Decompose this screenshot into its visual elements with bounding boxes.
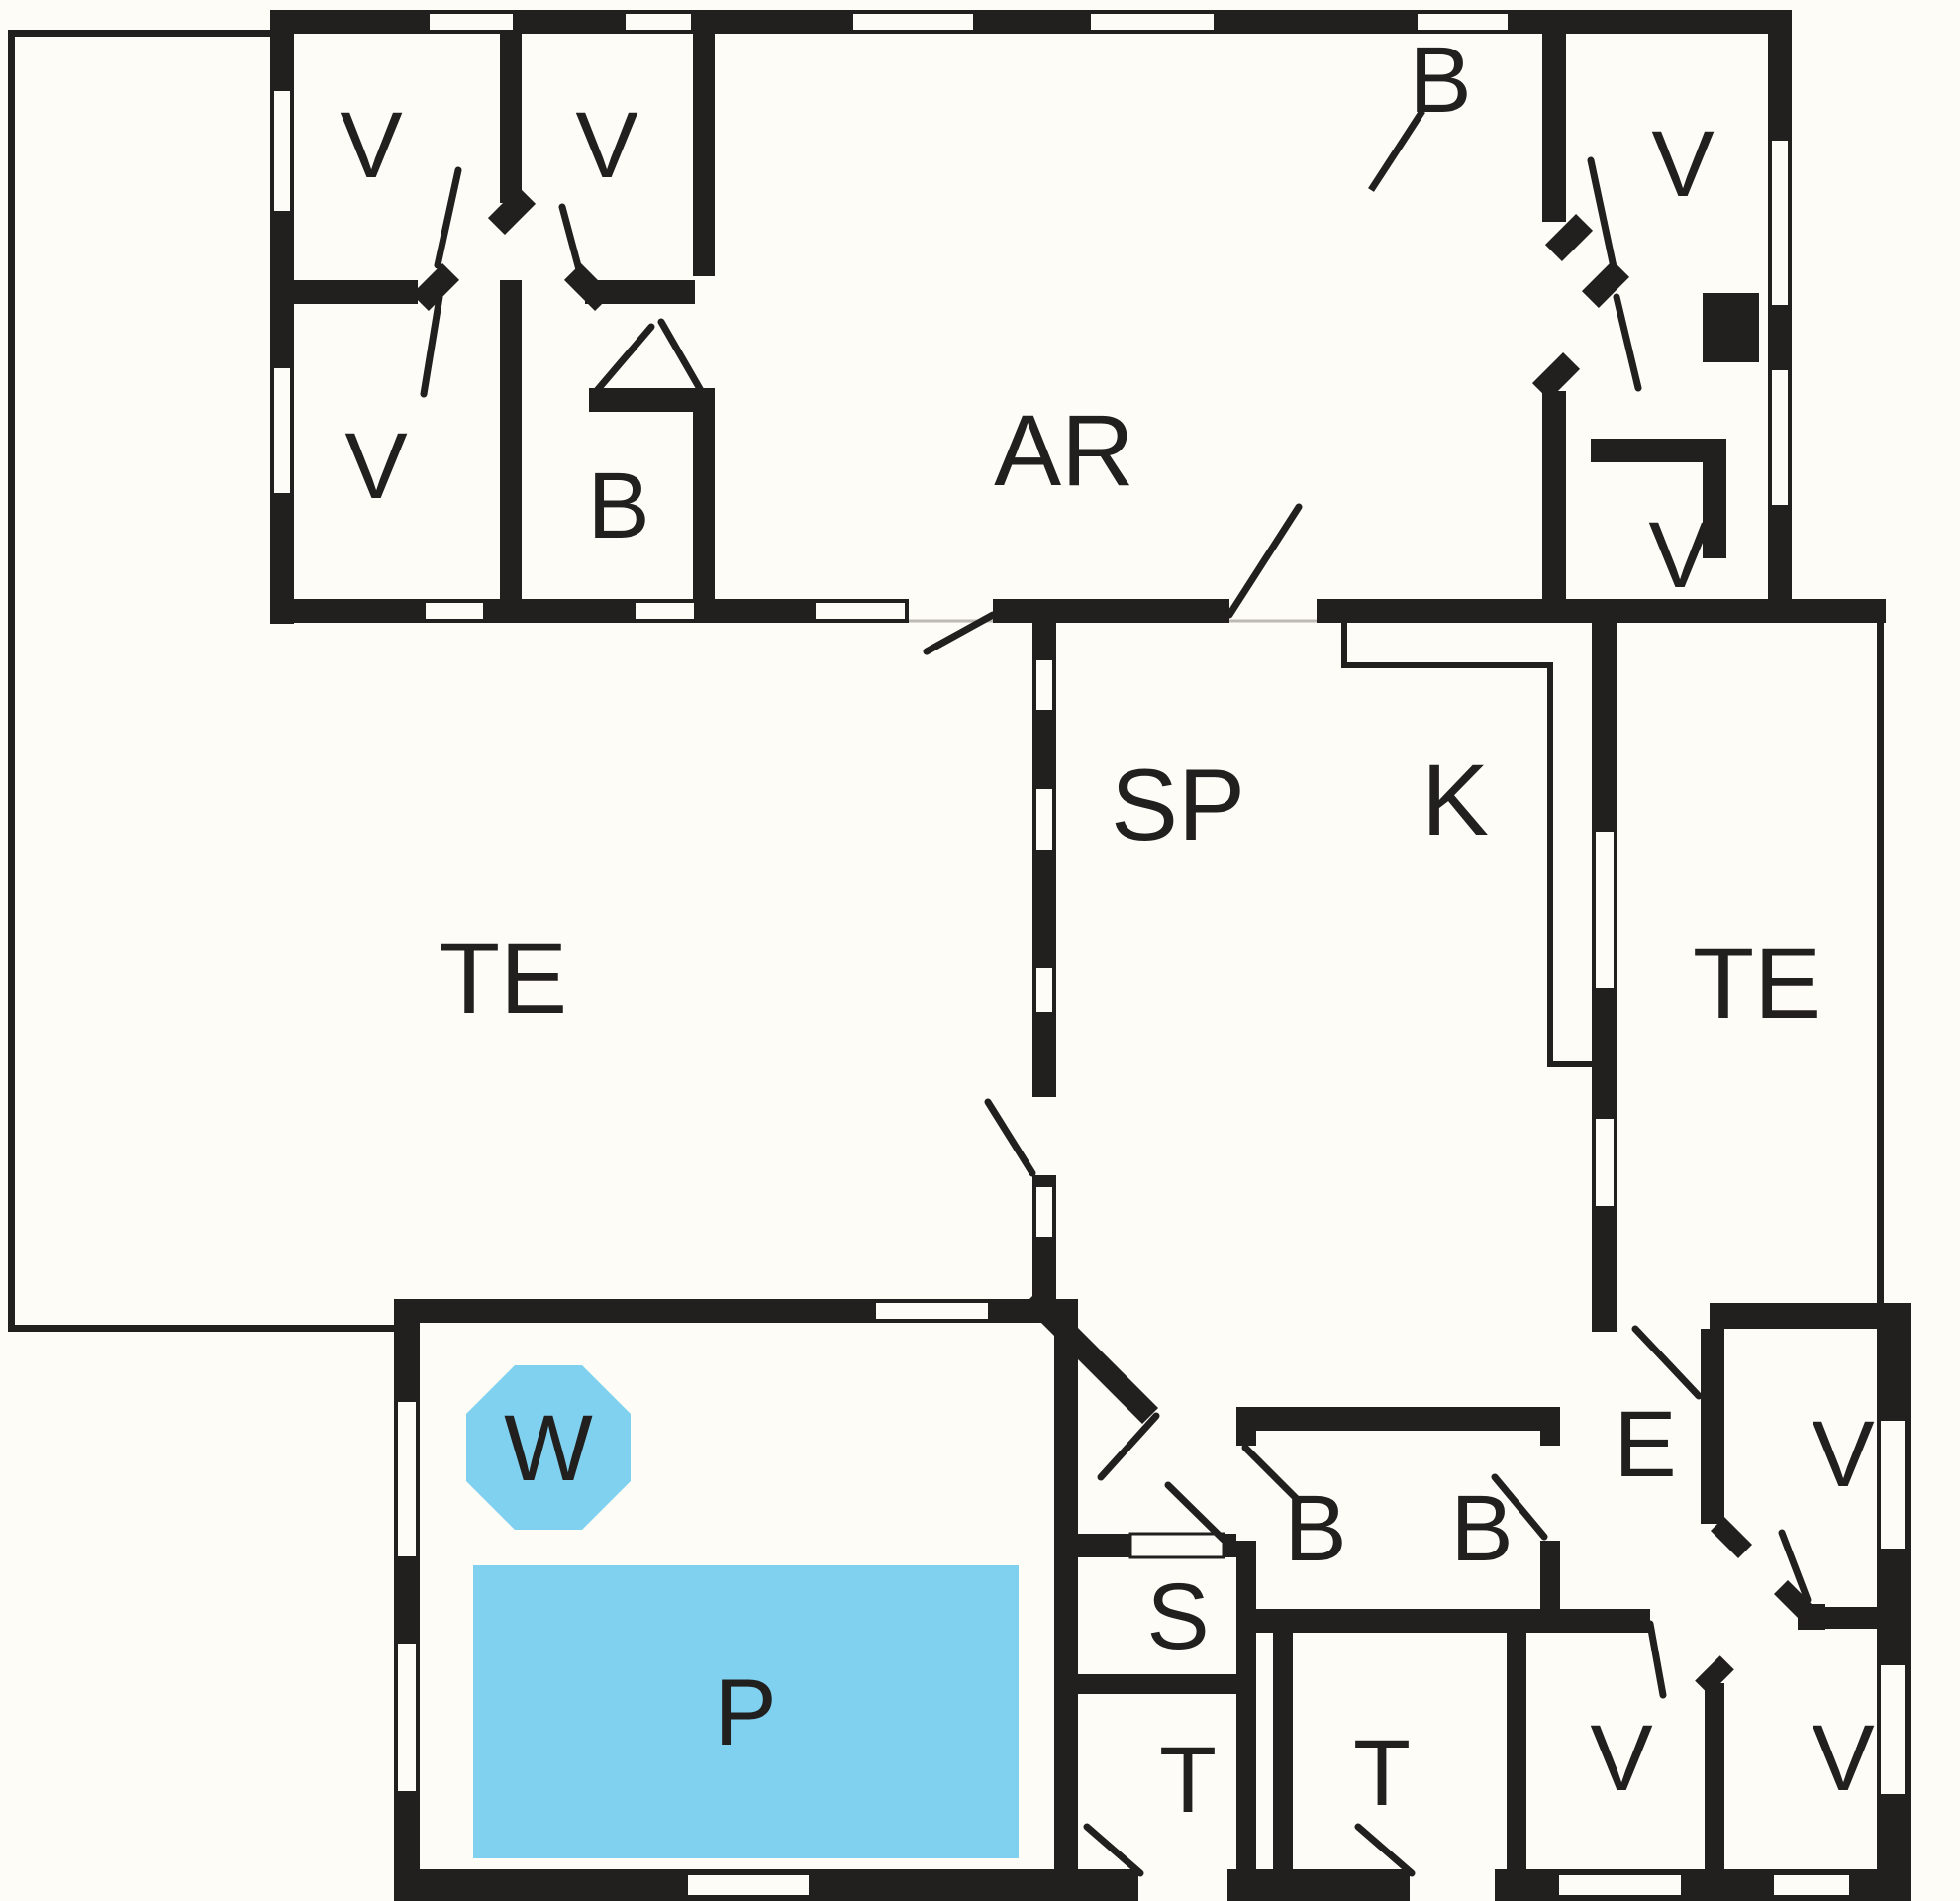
room-label-terrace-left: TE	[439, 922, 567, 1035]
room-label-bath-top-left: B	[587, 453, 649, 558]
room-label-toilet-small: T	[1159, 1728, 1217, 1833]
room-label-bedroom-top-left-2: V	[575, 93, 637, 198]
room-label-living-room: AR	[994, 394, 1134, 507]
floor-plan-canvas: V V V B AR B V V SP K TE TE W P S T B B …	[0, 0, 1960, 1901]
room-label-bath-top-right: B	[1409, 28, 1471, 133]
room-label-bath-middle-2: B	[1450, 1476, 1513, 1581]
room-label-bedroom-top-left-3: V	[344, 414, 407, 519]
room-label-pool: P	[714, 1660, 776, 1765]
room-label-kitchen: K	[1421, 744, 1489, 856]
room-label-bedroom-top-right-1: V	[1651, 112, 1714, 217]
room-label-bedroom-top-right-2: V	[1648, 503, 1711, 608]
room-label-dining-room: SP	[1111, 749, 1245, 861]
room-label-entrance: E	[1614, 1392, 1676, 1497]
room-label-bedroom-bottom-mid: V	[1590, 1706, 1652, 1811]
room-label-bedroom-top-left-1: V	[340, 93, 402, 198]
room-label-bath-middle-1: B	[1284, 1476, 1346, 1581]
room-label-whirlpool: W	[504, 1396, 593, 1501]
room-label-bedroom-right-top: V	[1812, 1402, 1874, 1507]
room-label-terrace-right: TE	[1693, 927, 1821, 1040]
floor-plan-drawing: V V V B AR B V V SP K TE TE W P S T B B …	[0, 0, 1960, 1901]
room-label-sauna: S	[1146, 1564, 1209, 1669]
room-label-toilet-big: T	[1353, 1721, 1411, 1826]
room-label-bedroom-bottom-right: V	[1812, 1706, 1874, 1811]
